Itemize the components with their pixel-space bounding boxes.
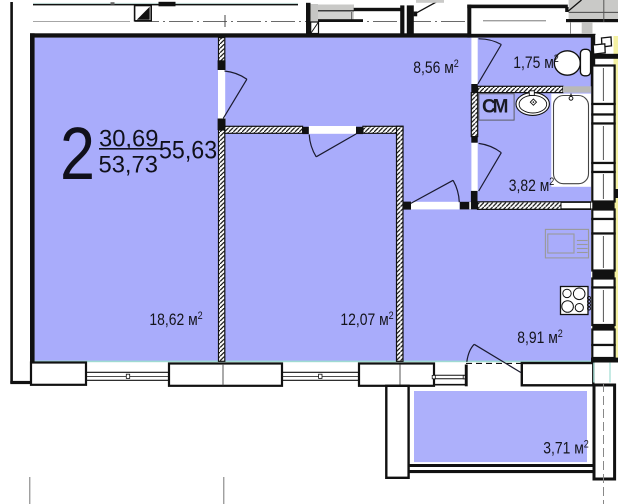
svg-text:3,82 м2: 3,82 м2 <box>509 176 555 195</box>
svg-text:55,63: 55,63 <box>159 137 217 165</box>
svg-text:СМ: СМ <box>482 97 509 118</box>
svg-text:3,71 м2: 3,71 м2 <box>543 439 589 458</box>
svg-text:8,56 м2: 8,56 м2 <box>413 58 459 77</box>
svg-text:53,73: 53,73 <box>99 151 158 178</box>
svg-text:12,07 м2: 12,07 м2 <box>340 310 394 329</box>
svg-text:18,62 м2: 18,62 м2 <box>149 310 203 329</box>
svg-text:8,91 м2: 8,91 м2 <box>517 328 563 347</box>
svg-text:1,75 м2: 1,75 м2 <box>513 53 559 72</box>
svg-text:2: 2 <box>60 112 95 195</box>
